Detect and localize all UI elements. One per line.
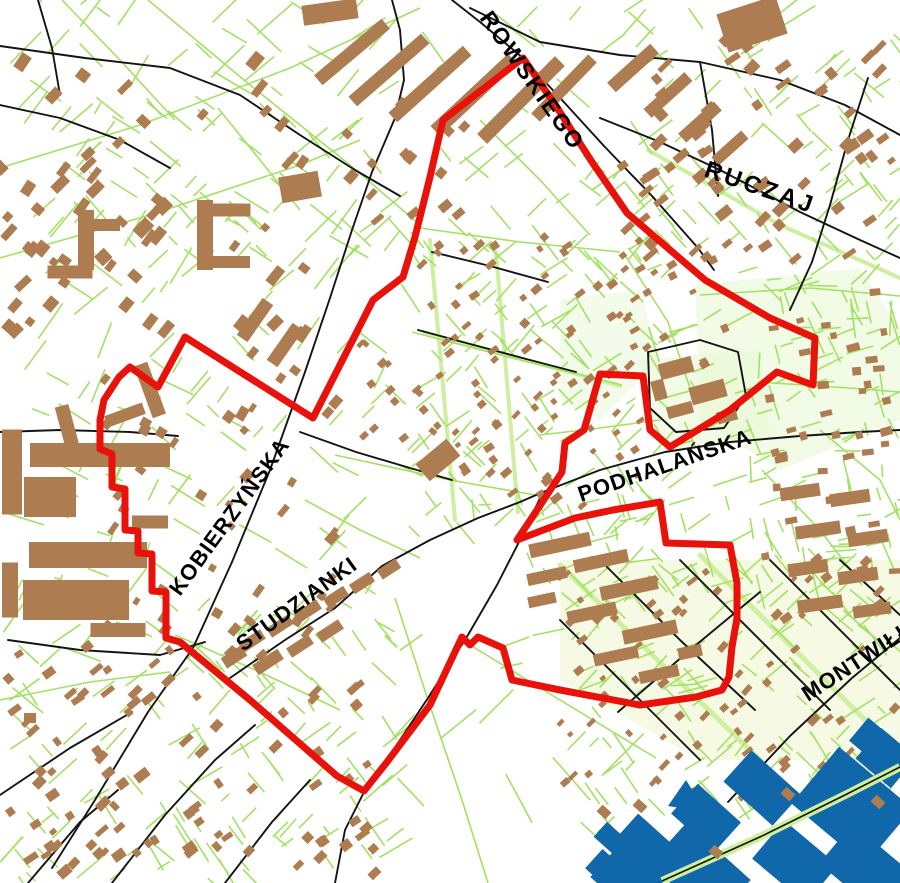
map-viewport: ROWSKIEGORUCZAJKOBIERZYŃSKASTUDZIANKIPOD… xyxy=(0,0,900,883)
city-map-image: ROWSKIEGORUCZAJKOBIERZYŃSKASTUDZIANKIPOD… xyxy=(0,0,900,883)
